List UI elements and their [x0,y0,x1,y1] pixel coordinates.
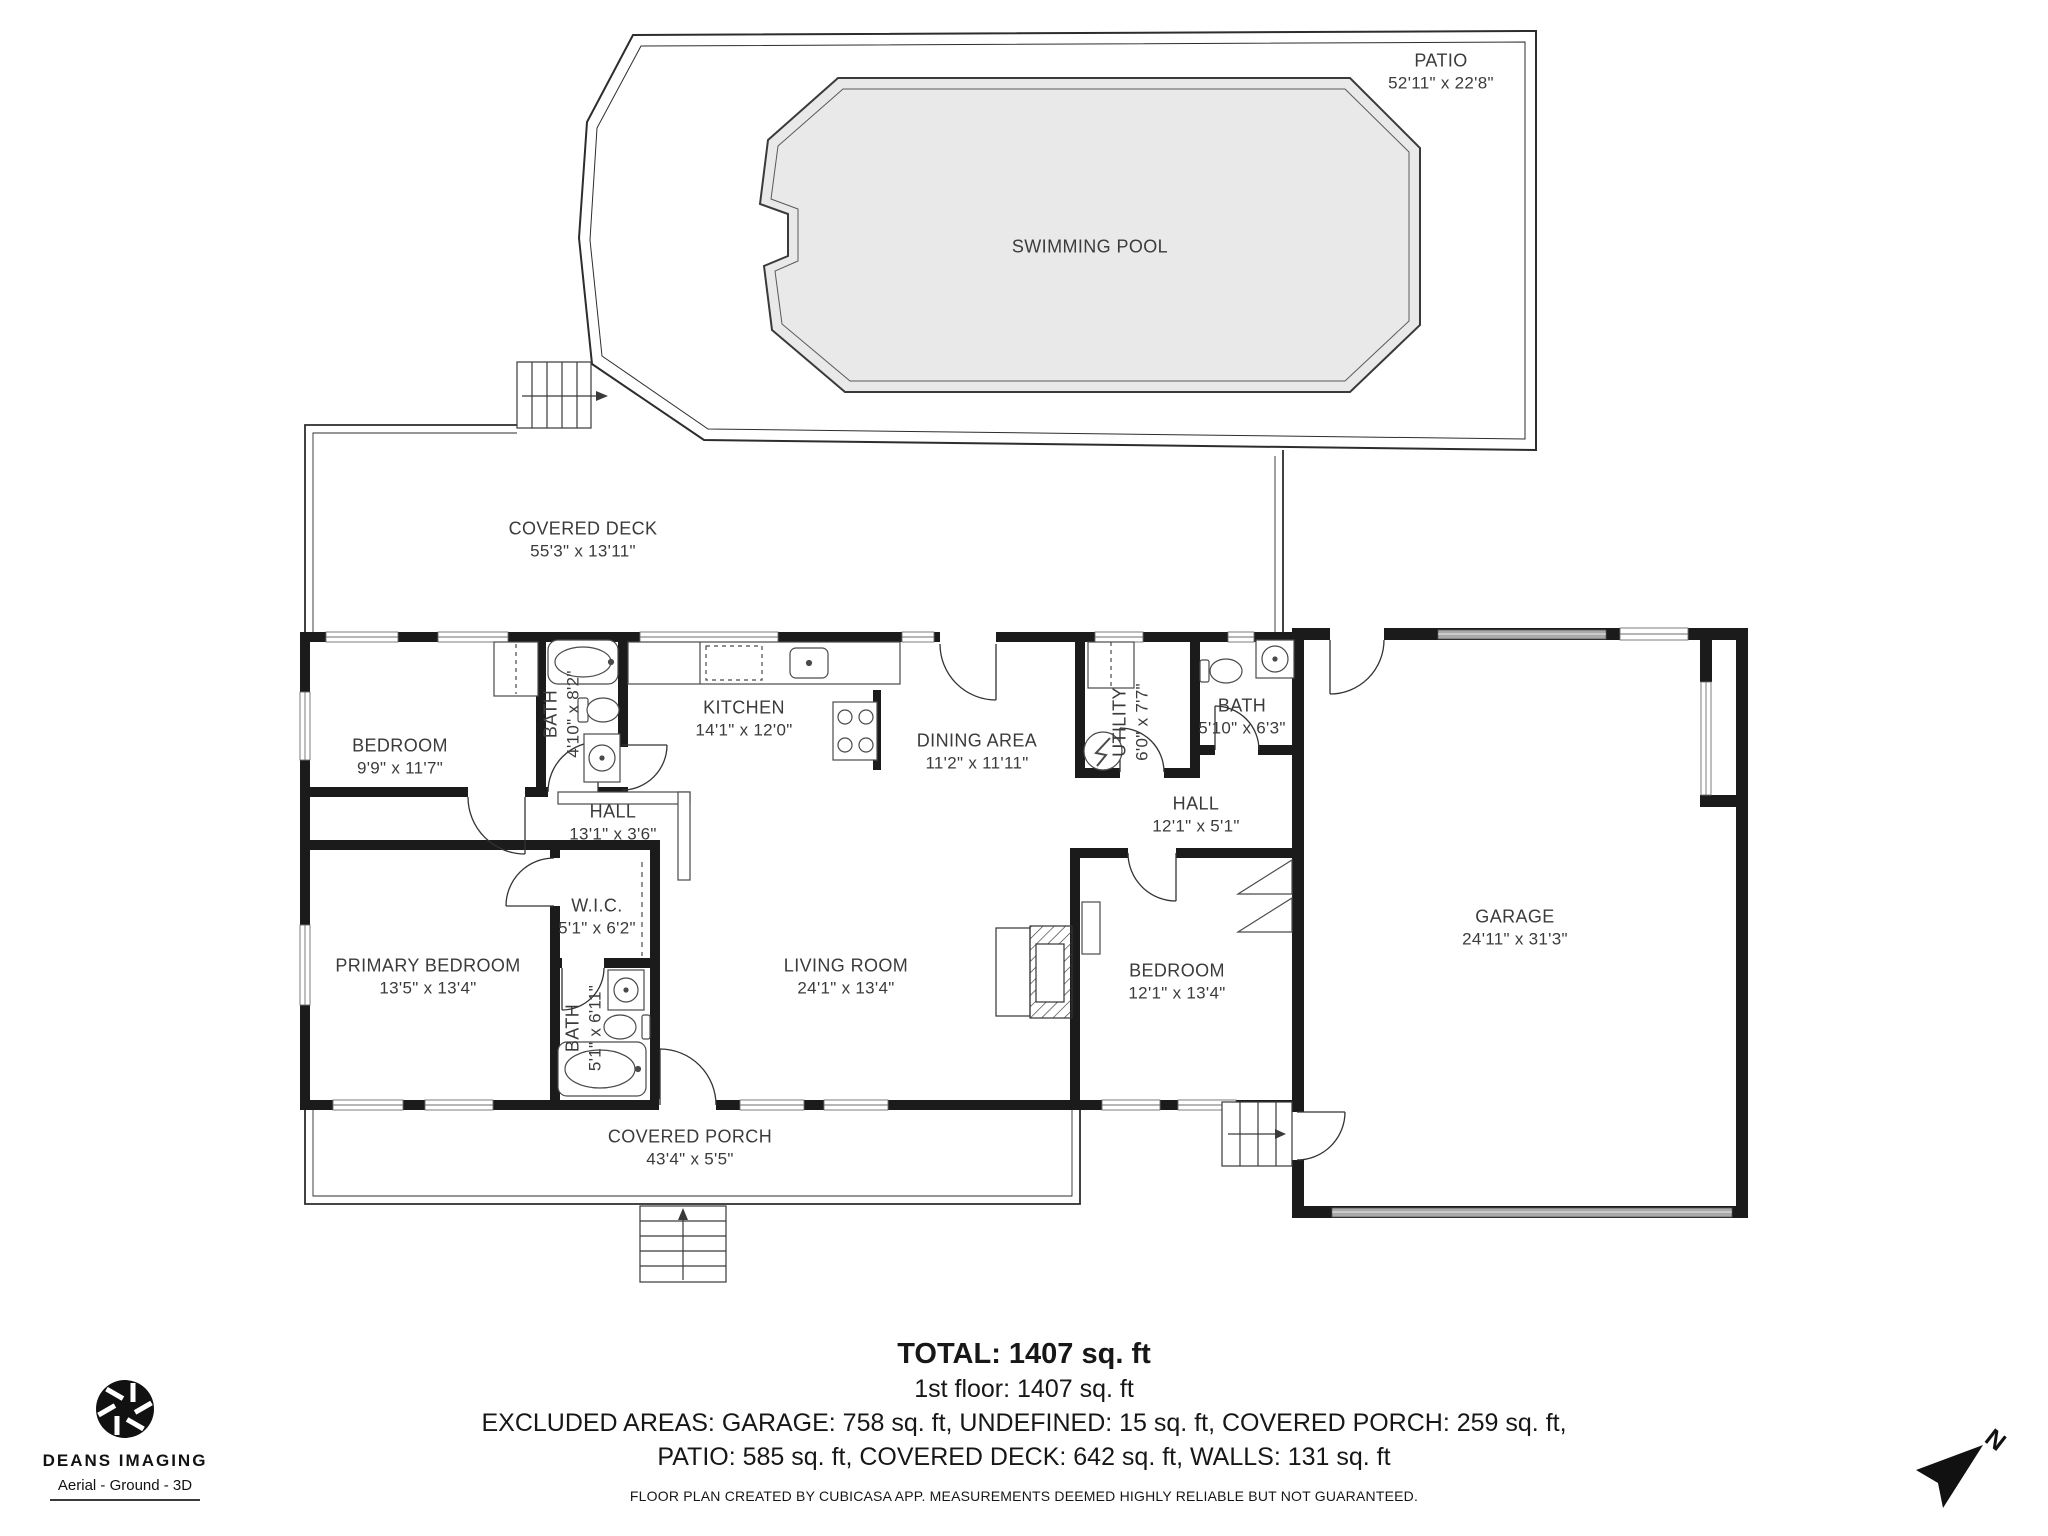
room-label-living-room: LIVING ROOM 24'1" x 13'4" [784,955,908,1000]
room-label-patio: PATIO 52'11" x 22'8" [1388,50,1494,95]
toilet-icon [642,1015,650,1039]
north-arrow: N [1890,1390,2030,1530]
room-label-garage: GARAGE 24'11" x 31'3" [1462,906,1568,951]
room-label-utility: UTILITY 6'0" x 7'7" [1109,683,1154,761]
kitchen-counter [628,642,900,684]
room-label-bath-3: BATH 5'1" x 6'11" [562,985,607,1071]
north-arrow-icon [1890,1390,2030,1530]
room-label-primary-bedroom: PRIMARY BEDROOM 13'5" x 13'4" [335,955,520,1000]
room-label-hall-1: HALL 13'1" x 3'6" [569,801,656,846]
room-label-hall-2: HALL 12'1" x 5'1" [1152,793,1239,838]
room-label-kitchen: KITCHEN 14'1" x 12'0" [695,697,792,742]
first-floor-area: 1st floor: 1407 sq. ft [0,1375,2048,1404]
brand-tagline: Aerial - Ground - 3D [50,1477,200,1501]
room-label-dining-area: DINING AREA 11'2" x 11'11" [917,730,1037,775]
windows [300,628,1711,1110]
floor-plan-canvas: PATIO 52'11" x 22'8" SWIMMING POOL COVER… [0,0,2048,1536]
bifold-door-icon [1238,898,1292,932]
bifold-door-icon [1238,860,1292,894]
fixtures [494,640,1294,1096]
deck-stairs [517,362,608,428]
room-label-covered-porch: COVERED PORCH 43'4" x 5'5" [608,1126,772,1171]
appliance-icon [1088,642,1134,688]
room-label-swimming-pool: SWIMMING POOL [1012,235,1168,258]
disclaimer: FLOOR PLAN CREATED BY CUBICASA APP. MEAS… [0,1488,2048,1504]
room-label-bedroom-2: BEDROOM 12'1" x 13'4" [1128,960,1225,1005]
garage-steps [1222,1102,1292,1166]
room-label-bedroom-1: BEDROOM 9'9" x 11'7" [352,735,448,780]
fireplace [996,926,1072,1018]
room-label-bath-2: BATH 5'10" x 6'3" [1198,695,1285,740]
area-summary: TOTAL: 1407 sq. ft 1st floor: 1407 sq. f… [0,1338,2048,1504]
excluded-areas-line-2: PATIO: 585 sq. ft, COVERED DECK: 642 sq.… [0,1443,2048,1472]
total-area: TOTAL: 1407 sq. ft [0,1338,2048,1371]
room-label-covered-deck: COVERED DECK 55'3" x 13'11" [509,518,658,563]
toilet-icon [1200,660,1209,682]
room-label-bath-1: BATH 4'10" x 8'2" [540,670,585,757]
brand-name: DEANS IMAGING [30,1451,220,1471]
excluded-areas-line-1: EXCLUDED AREAS: GARAGE: 758 sq. ft, UNDE… [0,1409,2048,1438]
aperture-icon [89,1378,161,1442]
room-label-wic: W.I.C. 5'1" x 6'2" [558,895,636,940]
deans-imaging-logo: DEANS IMAGING Aerial - Ground - 3D [30,1378,220,1501]
deck-outline [305,425,1283,632]
stove-icon [833,702,877,760]
porch-stairs [640,1206,726,1282]
